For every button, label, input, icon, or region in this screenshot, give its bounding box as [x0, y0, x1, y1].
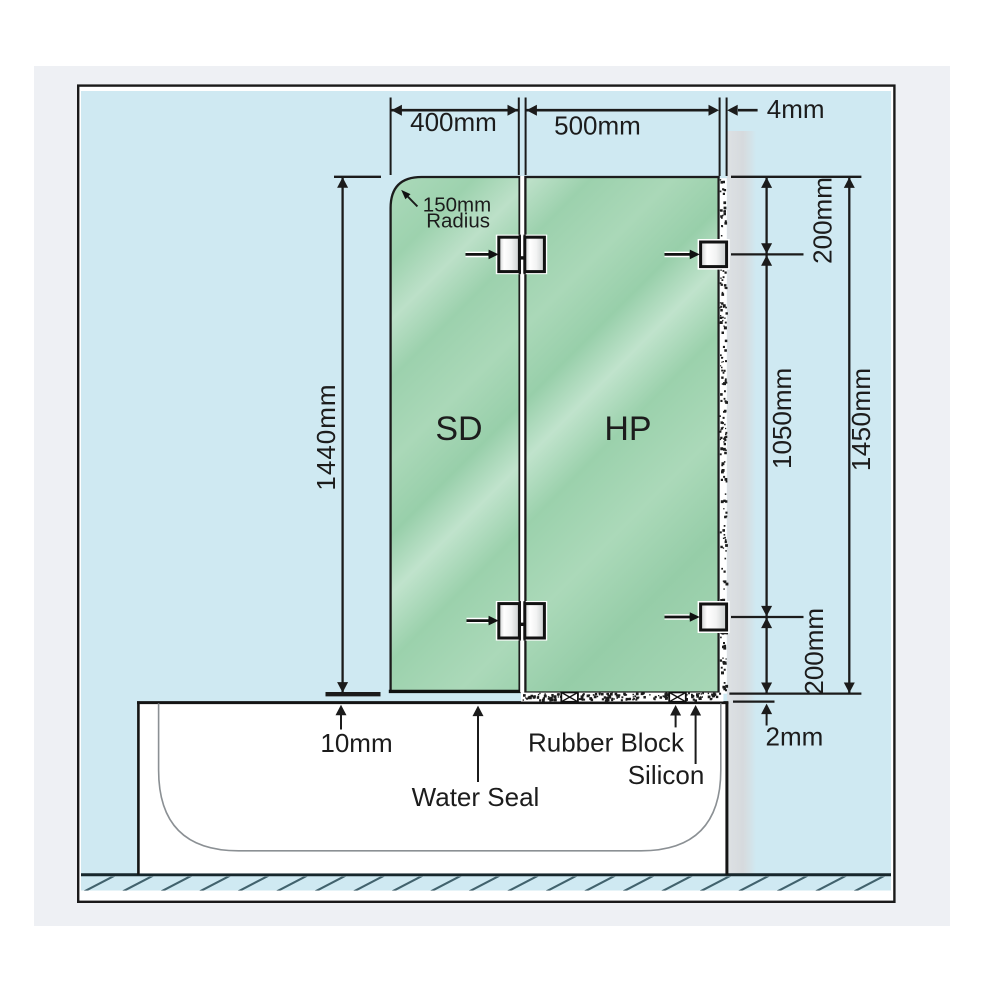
svg-text:10mm: 10mm: [320, 728, 392, 758]
svg-text:Radius: Radius: [426, 210, 490, 233]
svg-text:Rubber Block: Rubber Block: [528, 728, 685, 758]
svg-text:4mm: 4mm: [767, 94, 825, 124]
svg-text:HP: HP: [604, 410, 651, 448]
svg-text:200mm: 200mm: [799, 608, 829, 695]
svg-text:2mm: 2mm: [766, 722, 824, 752]
svg-text:1450mm: 1450mm: [846, 368, 876, 472]
svg-text:400mm: 400mm: [410, 107, 497, 137]
svg-text:SD: SD: [435, 410, 482, 448]
svg-text:1050mm: 1050mm: [767, 368, 797, 469]
svg-text:500mm: 500mm: [554, 111, 641, 141]
svg-text:Water Seal: Water Seal: [412, 782, 540, 812]
svg-text:1440mm: 1440mm: [311, 383, 341, 490]
svg-text:Silicon: Silicon: [628, 760, 705, 790]
svg-text:200mm: 200mm: [808, 177, 838, 264]
